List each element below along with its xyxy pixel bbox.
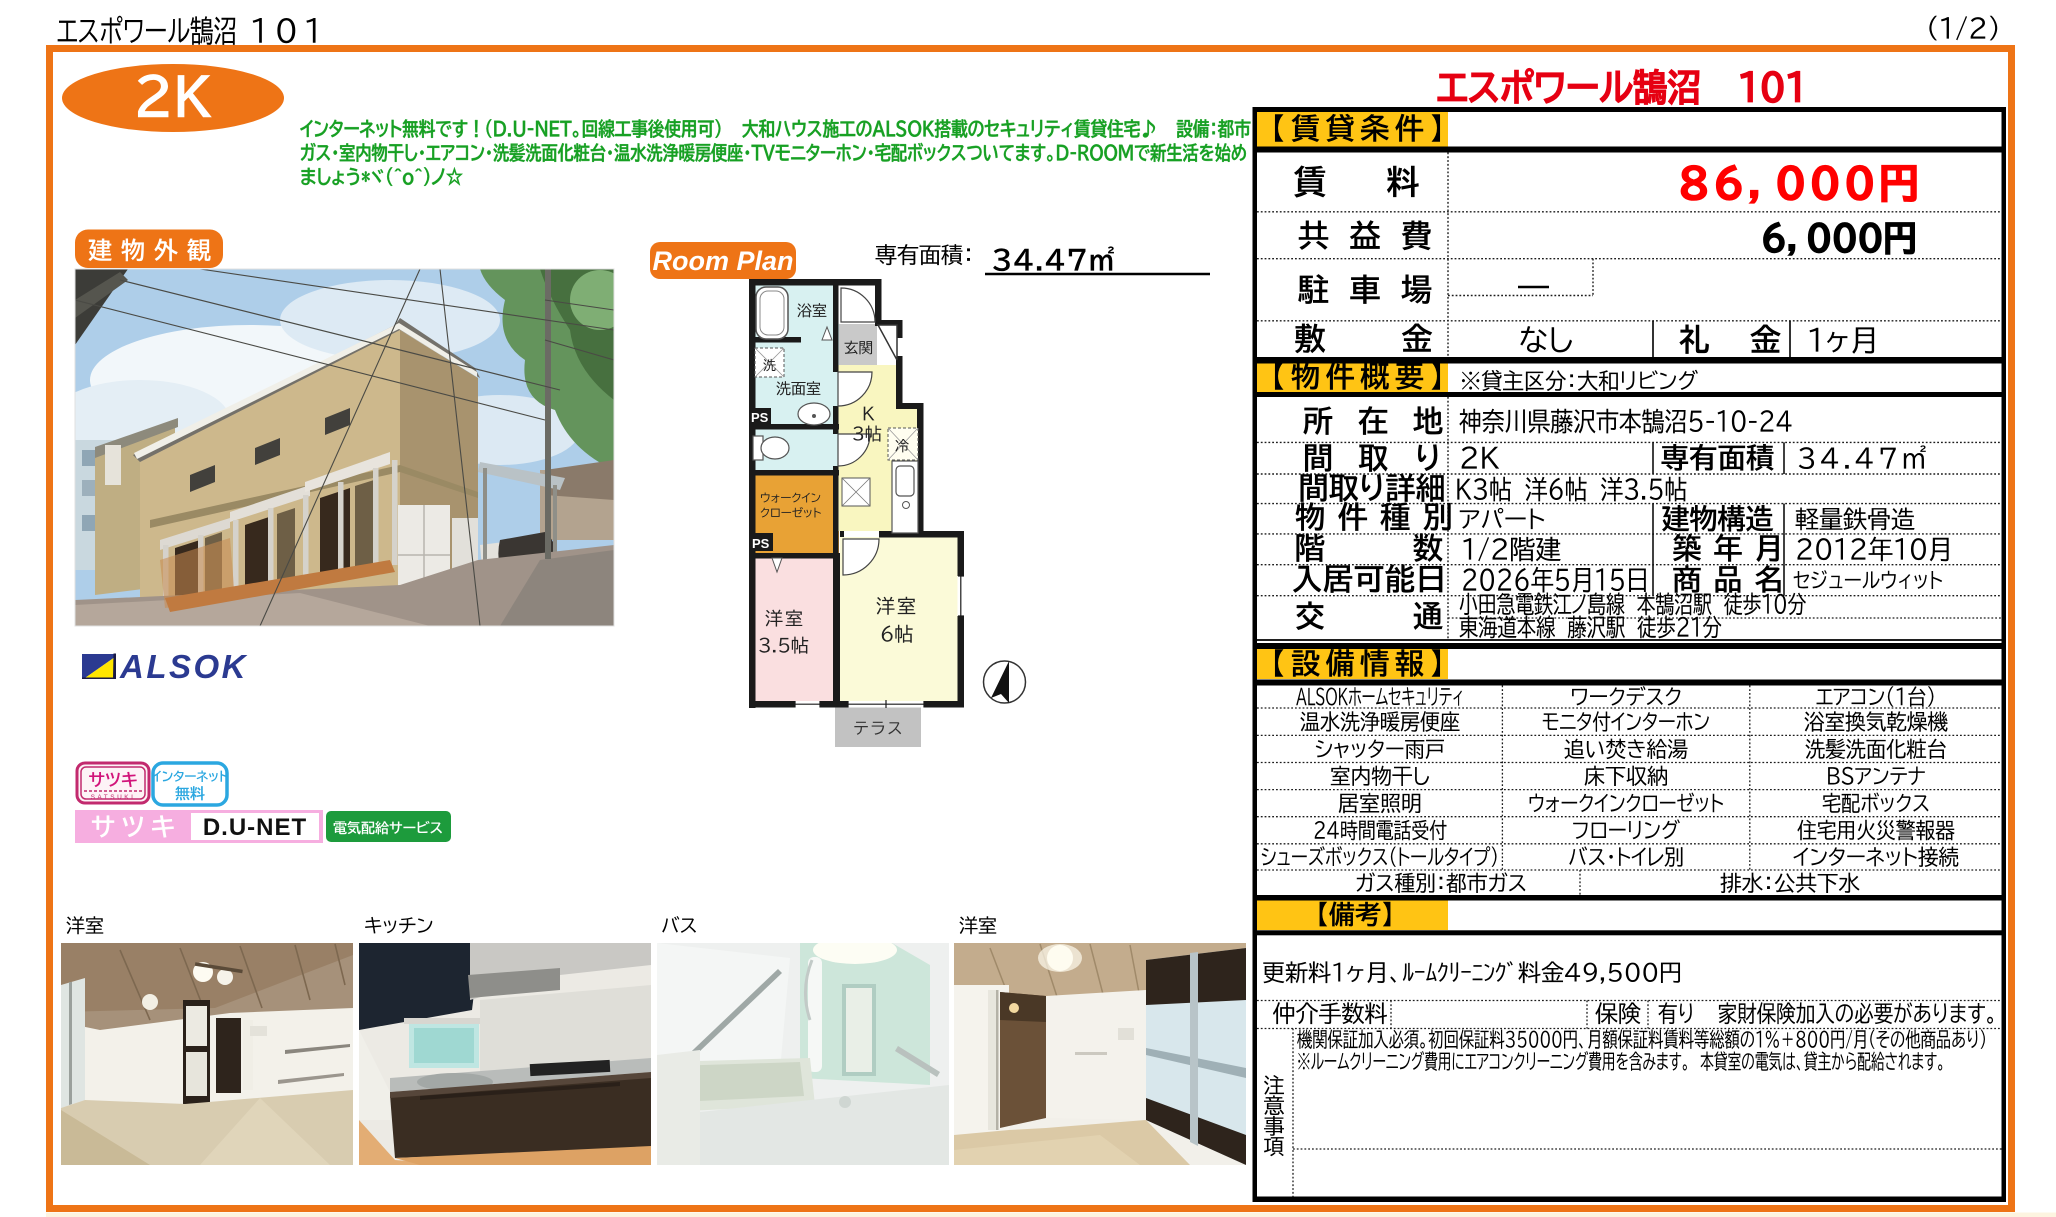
svg-text:D.U-NET: D.U-NET — [203, 814, 307, 841]
svg-text:ALSOK: ALSOK — [119, 648, 248, 685]
svg-text:PS: PS — [751, 410, 769, 425]
svg-text:Room Plan: Room Plan — [652, 246, 793, 276]
svg-text:SATSUKI: SATSUKI — [91, 794, 136, 801]
svg-text:PS: PS — [752, 536, 770, 551]
